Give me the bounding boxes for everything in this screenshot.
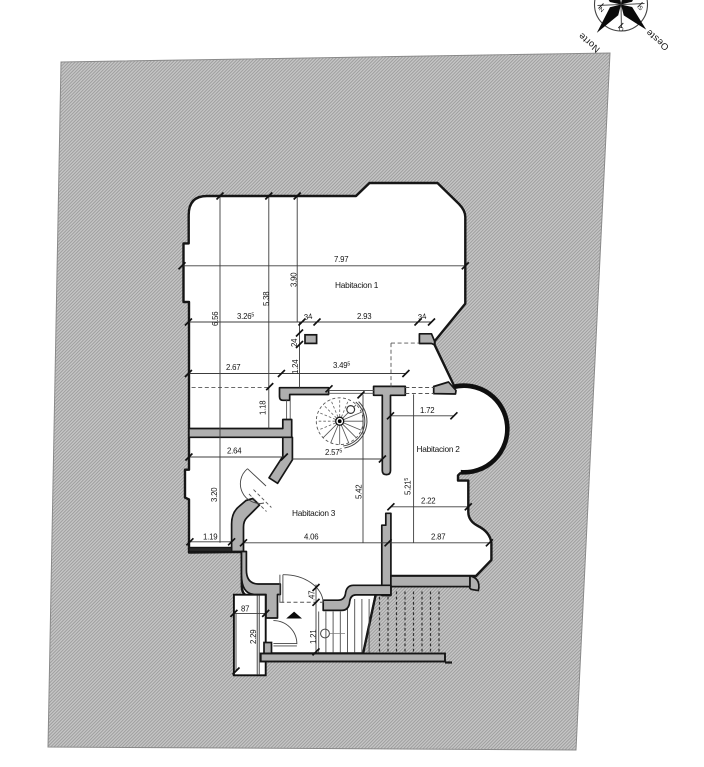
svg-text:.47: .47	[308, 591, 317, 601]
svg-text:2.87: 2.87	[431, 533, 445, 542]
svg-text:Norte: Norte	[576, 31, 602, 56]
svg-text:2.67: 2.67	[226, 363, 240, 372]
svg-text:3.20: 3.20	[210, 487, 219, 502]
svg-text:5.42: 5.42	[355, 485, 364, 499]
svg-text:5.38: 5.38	[262, 292, 271, 306]
svg-text:2.93: 2.93	[357, 312, 371, 321]
svg-text:1.19: 1.19	[203, 533, 217, 542]
svg-text:24: 24	[290, 338, 299, 347]
svg-text:4.06: 4.06	[304, 533, 318, 542]
svg-text:Habitacion 3: Habitacion 3	[292, 508, 336, 518]
svg-text:87: 87	[241, 605, 249, 614]
svg-text:1.18: 1.18	[259, 401, 268, 415]
svg-text:Oeste: Oeste	[643, 27, 671, 53]
svg-text:N: N	[599, 5, 606, 12]
svg-text:6.56: 6.56	[211, 312, 220, 326]
svg-text:1.24: 1.24	[291, 359, 300, 374]
svg-text:Habitacion 2: Habitacion 2	[417, 444, 461, 454]
svg-text:3.90: 3.90	[290, 272, 299, 287]
svg-text:1.72: 1.72	[420, 406, 434, 415]
svg-text:Habitacion 1: Habitacion 1	[335, 280, 379, 290]
svg-text:7.97: 7.97	[334, 255, 348, 264]
svg-text:2.22: 2.22	[421, 497, 435, 506]
svg-text:2.29: 2.29	[249, 630, 258, 644]
svg-text:2.64: 2.64	[227, 447, 242, 456]
svg-text:S: S	[638, 4, 645, 11]
svg-text:1.21: 1.21	[309, 630, 318, 644]
